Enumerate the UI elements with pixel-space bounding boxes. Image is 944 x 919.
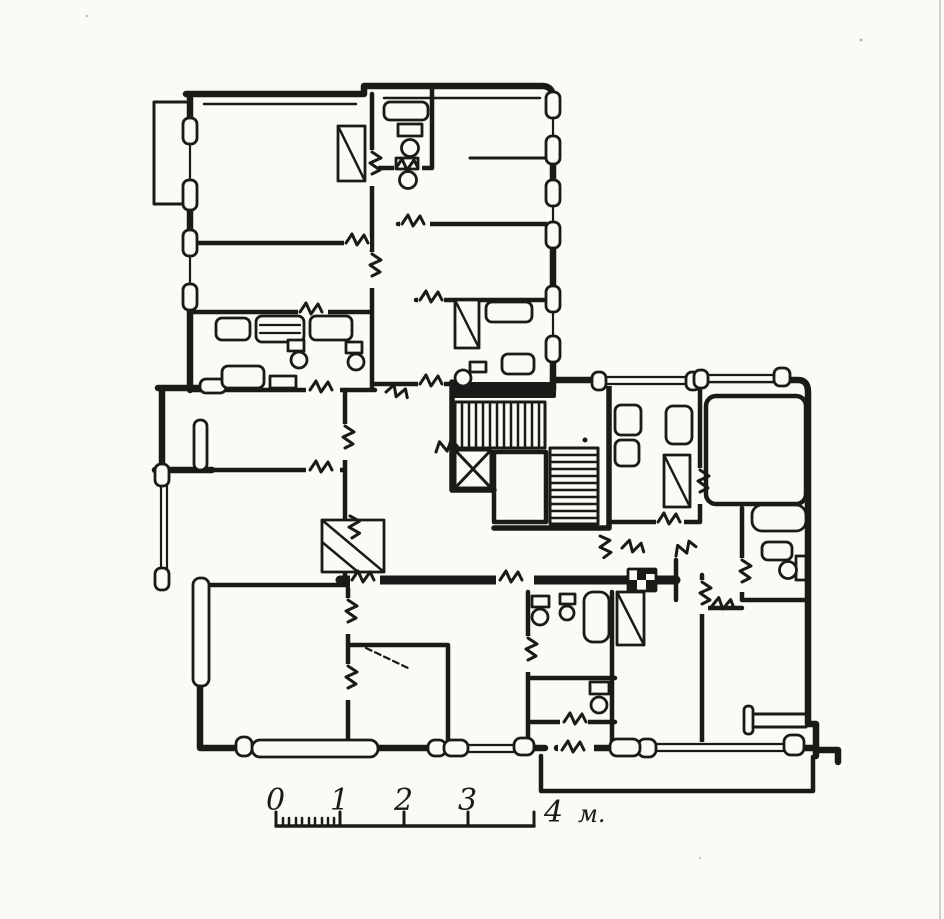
door-zigzag (672, 539, 697, 558)
bathtub-symbol (752, 505, 806, 531)
stair-core (455, 402, 598, 524)
scale-unit-label: м. (578, 800, 606, 828)
window-sill (546, 222, 560, 248)
room-inset-outline (706, 396, 806, 504)
porch (541, 756, 813, 791)
stair-flight-lower-hatch (551, 455, 597, 518)
fridge-symbol (666, 406, 692, 444)
step-rail-cap (744, 706, 753, 734)
scale-label-2: 2 (393, 783, 413, 818)
window-sill (514, 738, 534, 755)
toilet-tank (532, 596, 549, 607)
toilet-tank (398, 124, 422, 136)
window-sill (183, 284, 197, 310)
window-sill (183, 118, 197, 144)
toilet-bowl (400, 172, 417, 189)
door-zigzag (622, 539, 646, 554)
vent-shaft (628, 569, 656, 591)
toilet-bowl (402, 140, 419, 157)
counter-symbol (256, 316, 304, 342)
floor-plan-drawing: 0 1 2 3 4 м. (0, 0, 944, 919)
shaft-box (494, 452, 546, 522)
toilet-tank (346, 342, 362, 353)
window-sill (774, 368, 790, 386)
scale-label-0: 0 (266, 783, 285, 818)
bathtub-symbol (584, 592, 609, 642)
scale-label-1: 1 (330, 783, 349, 818)
door-leaf-dashed (366, 648, 408, 668)
toilet-tank (470, 362, 486, 372)
vent-grid-cell (637, 569, 646, 580)
window-sill (236, 737, 252, 756)
door-zigzag (598, 534, 613, 558)
toilet-bowl (780, 562, 797, 579)
window-sill (546, 286, 560, 312)
window-sill (784, 735, 804, 755)
counter-symbol (310, 316, 352, 340)
floor-plan-page: 0 1 2 3 4 м. (0, 0, 944, 919)
kitchen-unit (615, 440, 639, 466)
bath-symbol (222, 366, 264, 388)
toilet-tank (590, 682, 609, 694)
toilet-bowl (591, 697, 607, 713)
partitions-right-wing (612, 384, 808, 748)
window-sill (546, 92, 560, 118)
kitchen-unit (615, 405, 641, 435)
toilet-bowl (291, 352, 307, 368)
entrance-steps (753, 714, 806, 727)
window-sill (610, 739, 640, 756)
speck (860, 39, 863, 42)
window-gap (158, 478, 170, 574)
window-sill (183, 230, 197, 256)
window-sill (694, 370, 708, 388)
stair-flight-lower (550, 448, 598, 524)
scale-label-4: 4 (543, 795, 563, 830)
toilet-bowl (455, 370, 471, 386)
window-sill (183, 180, 197, 210)
cabinet-symbol (270, 376, 296, 388)
window-sill (444, 740, 468, 756)
sink-symbol (762, 542, 792, 560)
window-sill (546, 180, 560, 206)
outer-wall-upper-block (155, 86, 553, 748)
speck (699, 857, 702, 860)
vent-grid-cell (646, 580, 656, 591)
door-handle-dot (583, 438, 588, 443)
stair-flight-upper-hatch (462, 404, 539, 446)
toilet-tank (560, 594, 575, 604)
vent-grid-cell (628, 580, 637, 591)
cabinet-symbol (502, 354, 534, 374)
window-sill-band (252, 740, 378, 757)
wall-stub (194, 420, 207, 470)
window-sill (546, 136, 560, 164)
window-sill (546, 336, 560, 362)
window-sill (155, 464, 169, 486)
scale-label-3: 3 (458, 783, 477, 818)
window-sill-band (193, 578, 209, 686)
interior-walls (190, 86, 808, 750)
porch-outline (541, 756, 813, 791)
window-sill (155, 568, 169, 590)
toilet-bowl (532, 609, 548, 625)
sink-symbol (216, 318, 250, 340)
sofa-symbol (486, 302, 532, 322)
toilet-tank (288, 340, 304, 351)
speck (86, 15, 88, 17)
toilet-bowl (348, 354, 364, 370)
vent-grid-cell (646, 569, 656, 574)
toilet-bowl (560, 606, 574, 620)
sink-symbol (384, 102, 428, 120)
elevator-cross-icon (455, 450, 491, 488)
window-sill (592, 372, 606, 390)
